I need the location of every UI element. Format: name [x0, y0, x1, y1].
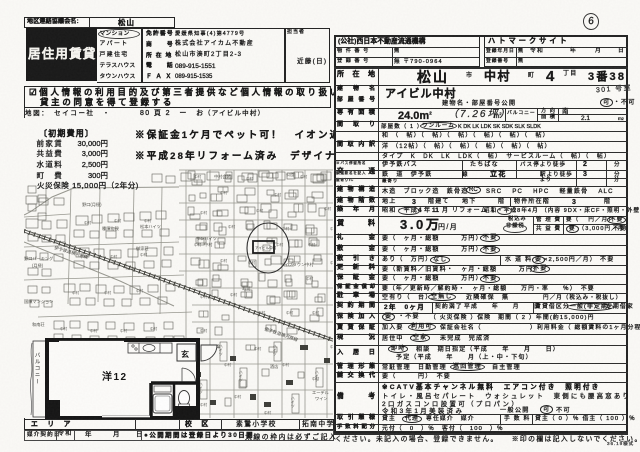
- svg-text:中村: 中村: [220, 190, 228, 195]
- svg-text:中村: 中村: [324, 206, 332, 211]
- svg-text:松本ハイツ: 松本ハイツ: [140, 223, 161, 230]
- svg-text:和南荘: 和南荘: [32, 321, 45, 328]
- svg-text:寿司: 寿司: [242, 285, 250, 291]
- svg-text:中村: 中村: [264, 410, 272, 415]
- svg-text:野口(月極): 野口(月極): [82, 201, 102, 208]
- svg-text:ワイン: ワイン: [315, 396, 328, 401]
- svg-text:中村: 中村: [246, 176, 254, 181]
- svg-text:バルコニー: バルコニー: [34, 352, 41, 385]
- svg-text:中村: 中村: [308, 242, 316, 247]
- svg-text:中村: 中村: [254, 346, 262, 351]
- svg-text:中村: 中村: [306, 276, 314, 281]
- svg-text:中村: 中村: [330, 344, 333, 349]
- svg-text:御家荘: 御家荘: [136, 245, 149, 252]
- svg-text:アイビル中村: アイビル中村: [255, 245, 277, 250]
- svg-text:ハイツ: ハイツ: [273, 344, 278, 356]
- svg-text:洋12: 洋12: [102, 370, 128, 383]
- svg-text:中村: 中村: [312, 310, 320, 315]
- svg-text:中村: 中村: [104, 290, 112, 295]
- svg-text:玄: 玄: [181, 349, 189, 359]
- svg-text:酒店: 酒店: [270, 363, 278, 370]
- svg-text:中村: 中村: [220, 258, 228, 263]
- svg-text:中村: 中村: [194, 242, 202, 247]
- svg-text:中村: 中村: [228, 224, 236, 229]
- svg-text:中村: 中村: [204, 241, 213, 248]
- svg-text:中村: 中村: [144, 218, 152, 223]
- svg-text:中村: 中村: [300, 174, 308, 179]
- svg-text:エーデル: エーデル: [312, 389, 329, 396]
- svg-text:中村: 中村: [330, 226, 333, 231]
- svg-text:中村: 中村: [312, 376, 320, 381]
- svg-text:中村: 中村: [140, 252, 148, 257]
- svg-text:中村: 中村: [256, 208, 264, 213]
- svg-text:中村: 中村: [224, 362, 232, 367]
- svg-text:中村: 中村: [276, 242, 284, 247]
- svg-text:中村: 中村: [200, 294, 208, 299]
- svg-text:中村: 中村: [114, 218, 122, 223]
- svg-text:中村会館: 中村会館: [214, 173, 231, 180]
- svg-text:ハイツ: ハイツ: [291, 396, 296, 408]
- svg-text:中村: 中村: [110, 254, 118, 259]
- svg-text:種陳物観: 種陳物観: [102, 225, 120, 232]
- svg-text:中村: 中村: [194, 174, 202, 179]
- svg-text:中村: 中村: [274, 192, 282, 197]
- svg-text:中村: 中村: [84, 220, 92, 225]
- svg-text:中村: 中村: [200, 210, 208, 215]
- svg-text:中村: 中村: [234, 394, 242, 399]
- svg-text:(月極): (月極): [32, 262, 44, 269]
- svg-text:国陳マンション: 国陳マンション: [24, 298, 53, 305]
- svg-text:中村: 中村: [282, 362, 290, 367]
- svg-text:ハイツ: ハイツ: [239, 370, 244, 382]
- svg-text:中村: 中村: [72, 290, 80, 295]
- svg-text:中村: 中村: [258, 310, 266, 315]
- svg-text:中村: 中村: [330, 260, 333, 265]
- svg-text:中村: 中村: [286, 310, 294, 315]
- svg-text:中村: 中村: [230, 292, 238, 297]
- svg-text:中村: 中村: [80, 254, 88, 259]
- svg-text:野口パーキング: 野口パーキング: [24, 255, 53, 262]
- svg-text:中村: 中村: [136, 288, 144, 293]
